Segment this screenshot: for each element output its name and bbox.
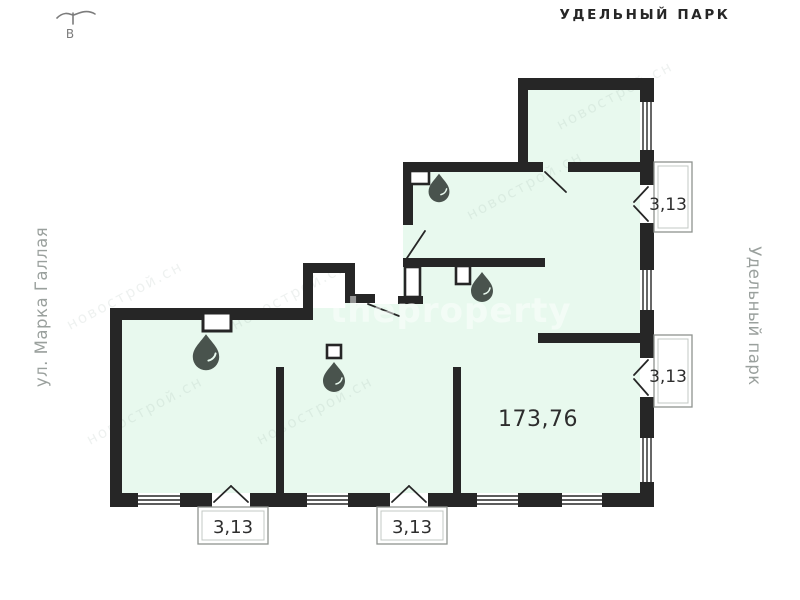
brand-watermark: theproperty xyxy=(330,291,572,331)
wall-bottom xyxy=(428,493,477,507)
wall-room-divider xyxy=(538,333,640,343)
window xyxy=(640,438,654,482)
balcony-right-top: 3,13 xyxy=(649,162,692,232)
balcony-bottom-middle: 3,13 xyxy=(377,507,447,544)
partition-middle xyxy=(453,367,461,493)
compass-east-letter: В xyxy=(66,27,74,41)
wall-right xyxy=(640,397,654,438)
wall-right xyxy=(640,150,654,185)
balcony-area-label: 3,13 xyxy=(649,367,687,387)
balcony-bottom-left: 3,13 xyxy=(198,507,268,544)
partition-left xyxy=(276,367,284,493)
floorplan-page: новострой.сн новострой.сн новострой.сн н… xyxy=(0,0,800,600)
wall-mid-horizontal xyxy=(568,162,640,172)
wall-bottom xyxy=(250,493,307,507)
balcony-area-label: 3,13 xyxy=(213,517,253,538)
window xyxy=(307,493,348,507)
park-label-right: Удельный парк xyxy=(745,246,764,386)
wall-bottom xyxy=(348,493,390,507)
window xyxy=(562,493,602,507)
vent-shaft xyxy=(327,345,341,358)
vent-shaft xyxy=(410,171,429,184)
total-area-label: 173,76 xyxy=(498,407,578,432)
wall-bottom xyxy=(518,493,562,507)
park-label-top: УДЕЛЬНЫЙ ПАРК xyxy=(560,6,731,23)
wall-top-room-left xyxy=(518,78,528,172)
vent-shaft xyxy=(203,313,231,331)
wall-bottom xyxy=(180,493,212,507)
street-label-left: ул. Марка Галлая xyxy=(32,227,51,387)
wall-top-room-top xyxy=(518,78,654,90)
vent-shaft xyxy=(456,266,470,284)
wall-kitchen xyxy=(403,258,545,267)
window xyxy=(640,102,654,150)
compass-icon: В xyxy=(57,12,95,41)
wall-right xyxy=(640,310,654,358)
balcony-area-label: 3,13 xyxy=(649,195,687,215)
window xyxy=(138,493,180,507)
wall-left xyxy=(110,308,122,507)
wall-right xyxy=(640,78,654,102)
balcony-area-label: 3,13 xyxy=(392,517,432,538)
balcony-right-middle: 3,13 xyxy=(649,335,692,407)
window xyxy=(477,493,518,507)
wall-bottom xyxy=(602,493,654,507)
wall-right xyxy=(640,223,654,270)
floor-plan: новострой.сн новострой.сн новострой.сн н… xyxy=(0,0,800,600)
window xyxy=(640,270,654,310)
